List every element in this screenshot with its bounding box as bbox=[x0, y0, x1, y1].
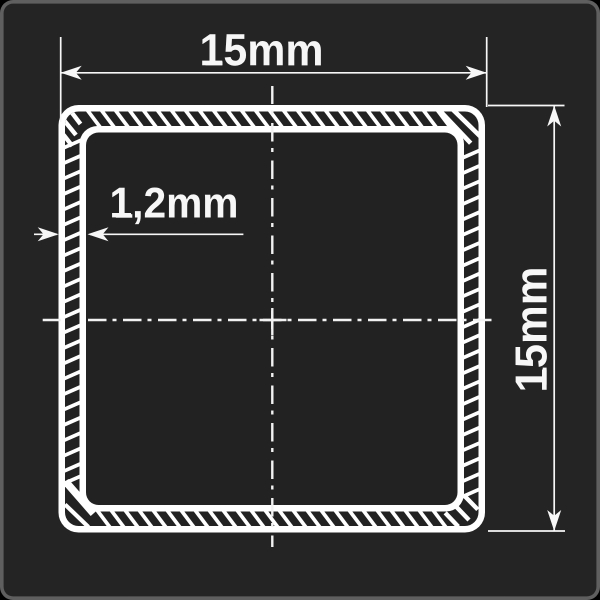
svg-text:1,2mm: 1,2mm bbox=[109, 179, 238, 227]
svg-text:15mm: 15mm bbox=[199, 24, 323, 75]
svg-text:15mm: 15mm bbox=[505, 266, 556, 392]
